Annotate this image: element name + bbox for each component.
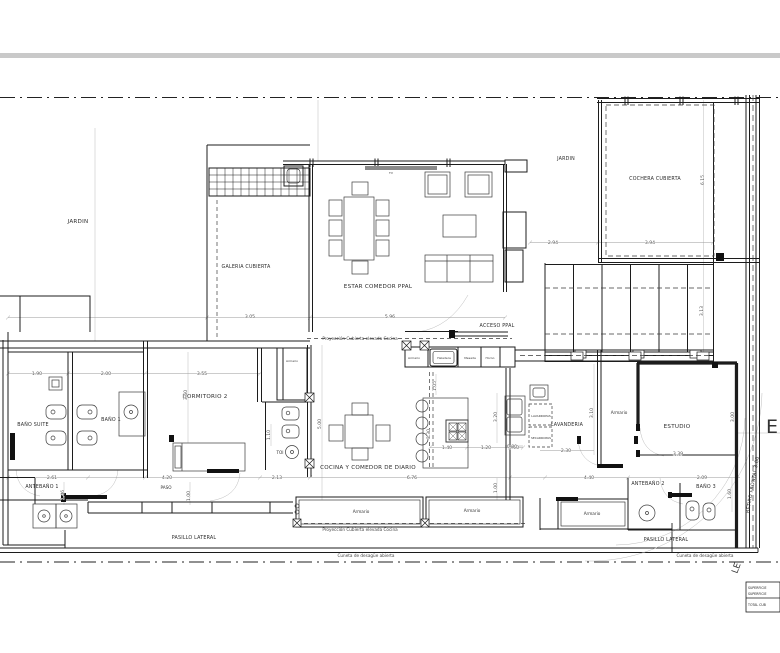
room-label-jardin: JARDIN — [67, 219, 89, 225]
legend-row-2: SUPERFICIE — [748, 592, 766, 596]
dim-estudio-w: 3.39 — [673, 451, 683, 457]
label-horno: Horno — [485, 356, 494, 360]
room-label-estar-comedor: ESTAR COMEDOR PPAL — [344, 284, 413, 290]
pergola-grid — [209, 168, 310, 196]
dim-cochera-left-w: 2.94 — [548, 240, 558, 246]
dim-dormitorio-h: 3.60 — [183, 390, 189, 400]
room-label-cocina: COCINA Y COMEDOR DE DIARIO — [320, 465, 416, 471]
floor-plan-canvas: SUPERFICIE SUPERFICIE TOTAL CUB JARDIN J… — [0, 0, 780, 653]
room-label-antebano-2: ANTEBAÑO 2 — [631, 480, 664, 487]
note-cuneta-right: Cuneta de desagüe abierta — [676, 553, 733, 558]
label-heladera: Heladera — [437, 356, 451, 360]
dim-bano-3-h: 1.60 — [727, 489, 733, 499]
label-armario-bajo-2: Armario — [464, 508, 481, 513]
label-paso: PASO — [160, 485, 172, 490]
dim-cocina-right-h: 3.20 — [493, 412, 499, 422]
dim-toi-h: 1.10 — [266, 430, 272, 440]
label-armario-dormitorio: Armario — [286, 359, 298, 363]
dim-cochera-h: 6.15 — [700, 175, 706, 185]
room-label-toi: TOI — [275, 450, 283, 455]
room-label-cochera: COCHERA CUBIERTA — [629, 176, 681, 182]
label-secarropas: SECARROPAS — [531, 436, 551, 440]
dim-isla-w: 1.40 — [442, 445, 452, 451]
dim-antebano-1-w: 2.61 — [47, 475, 57, 481]
street-letter: E — [766, 416, 778, 438]
note-proyeccion-bottom: Proyección Cubierta elevada Cocina — [322, 527, 398, 532]
label-tv: TV — [388, 171, 394, 175]
dim-toi-w: 2.13 — [272, 475, 282, 481]
label-armario-pasillo: Armario — [611, 410, 628, 415]
room-label-dormitorio-2: DORMITORIO 2 — [182, 394, 227, 400]
room-label-bano-1: BAÑO 1 — [101, 416, 121, 423]
note-cuneta-left: Cuneta de desagüe abierta — [337, 553, 394, 558]
dim-lavanderia-w: 2.30 — [561, 448, 571, 454]
dim-lavanderia-h: 3.10 — [589, 408, 595, 418]
dim-estar-w: 5.96 — [385, 314, 395, 320]
dim-galeria-w: 3.05 — [245, 314, 255, 320]
furniture — [33, 166, 715, 528]
legend-row-1: SUPERFICIE — [748, 586, 766, 590]
label-armario-cocina: Armario — [408, 356, 420, 360]
surface-legend: SUPERFICIE SUPERFICIE TOTAL CUB — [746, 582, 780, 612]
label-mesada: Mesada — [464, 356, 476, 360]
walls — [0, 95, 760, 548]
dim-bano-1-w: 2.00 — [101, 371, 111, 377]
room-label-estudio: ESTUDIO — [664, 424, 691, 430]
dim-bano-suite-w: 1.90 — [32, 371, 42, 377]
dim-isla-gap: 1.20 — [481, 445, 491, 451]
label-armario-bajo-3: Armario — [584, 511, 601, 516]
legend-row-3: TOTAL CUB — [747, 603, 766, 607]
dim-antebano-1-h: 1.46 — [60, 490, 66, 500]
dim-lavanderia-mesada: 0.80 — [507, 444, 517, 450]
dim-estudio-h: 3.00 — [730, 412, 736, 422]
dim-dormitorio-w: 3.55 — [197, 371, 207, 377]
dim-pasillo-w: 4.40 — [584, 475, 594, 481]
dim-paso-w: 4.20 — [162, 475, 172, 481]
dim-cocina-w: 6.76 — [407, 475, 417, 481]
dim-paso-h: 1.00 — [186, 491, 192, 501]
dim-cocina-h: 5.00 — [317, 419, 323, 429]
room-label-galeria: GALERIA CUBIERTA — [222, 264, 271, 270]
labels: JARDIN JARDIN GALERIA CUBIERTA ESTAR COM… — [17, 156, 778, 575]
label-acceso-ppal: ACCESO PPAL — [480, 323, 515, 329]
note-le: LE — [731, 561, 744, 575]
room-label-bano-suite: BAÑO SUITE — [17, 421, 48, 428]
label-pasillo-lateral-left: PASILLO LATERAL — [172, 535, 217, 541]
note-proyeccion-top: Proyección Cubierta elevada Cocina — [322, 336, 398, 341]
label-armario-bajo-1: Armario — [353, 509, 370, 514]
label-lavarropas: LAVARROPAS — [531, 414, 551, 418]
dashed-lines — [217, 95, 753, 548]
dim-cocina-bottom-h: 1.00 — [493, 483, 499, 493]
room-label-bano-3: BAÑO 3 — [696, 483, 716, 490]
room-label-jardin-2: JARDIN — [556, 156, 575, 162]
column-markers — [293, 341, 429, 527]
dim-bano-3-w: 2.09 — [697, 475, 707, 481]
label-pasillo-lateral-right: PASILLO LATERAL — [644, 537, 689, 543]
top-gray-band — [0, 53, 780, 58]
room-label-antebano-1: ANTEBAÑO 1 — [25, 483, 58, 490]
dim-cocina-centro-h: 3.30 — [426, 429, 432, 439]
room-label-lavanderia: LAVANDERIA — [551, 422, 584, 428]
dim-cochera-w: 3.94 — [645, 240, 655, 246]
note-retiro-frontal: RETIRO FRONTAL 3.00 — [745, 456, 761, 513]
floor-plan-page: SUPERFICIE SUPERFICIE TOTAL CUB JARDIN J… — [0, 0, 780, 653]
dim-cocina-top-h: 1.05 — [432, 381, 438, 391]
dim-deck-h: 3.13 — [699, 306, 705, 316]
